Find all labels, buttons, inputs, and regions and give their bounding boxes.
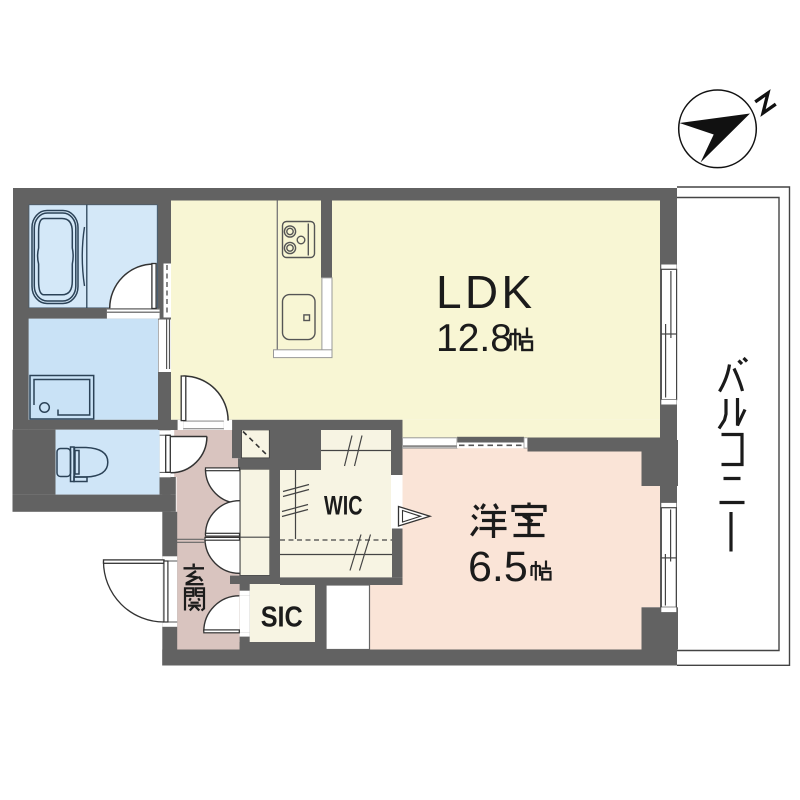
- svg-text:12.8: 12.8: [436, 317, 512, 360]
- svg-text:LDK: LDK: [436, 266, 535, 318]
- svg-text:SIC: SIC: [261, 602, 303, 634]
- svg-text:6.5: 6.5: [468, 543, 528, 591]
- svg-text:WIC: WIC: [324, 491, 363, 521]
